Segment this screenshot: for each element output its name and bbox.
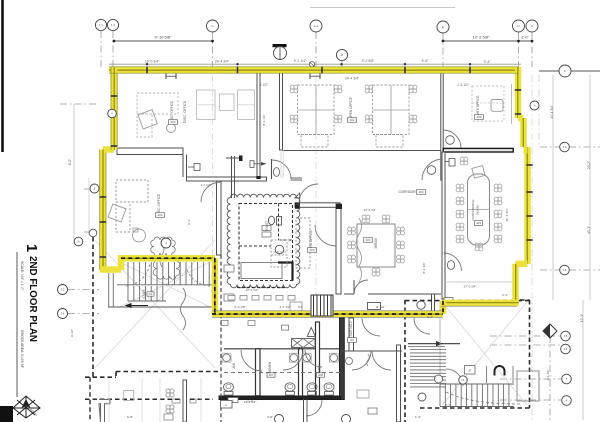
svg-text:24’-4 3/4”: 24’-4 3/4” [215,60,229,64]
svg-text:9’-10”: 9’-10” [70,329,74,337]
svg-text:N3: N3 [298,305,302,309]
svg-text:9’-8”: 9’-8” [127,415,133,419]
svg-text:F: F [564,69,566,73]
svg-text:402: 402 [349,118,354,122]
svg-text:6.9: 6.9 [564,347,568,351]
svg-text:11’-10”: 11’-10” [375,305,384,309]
svg-text:B: B [94,186,96,190]
svg-text:403: 403 [365,238,370,242]
svg-text:20’-4 3/4”: 20’-4 3/4” [505,208,509,221]
svg-text:4’-8”: 4’-8” [267,415,273,419]
svg-text:16’-0 3/4”: 16’-0 3/4” [145,60,159,64]
svg-text:STAIR: STAIR [142,289,146,299]
svg-text:A: A [111,111,113,115]
svg-text:9’-2 1/4”: 9’-2 1/4” [294,59,306,63]
svg-text:A.2: A.2 [314,24,319,28]
svg-text:4’-1”: 4’-1” [502,293,508,297]
svg-text:202: 202 [170,120,175,124]
svg-text:6.5: 6.5 [564,334,568,338]
svg-text:400: 400 [418,190,423,194]
svg-text:A: A [534,103,536,107]
svg-text:1’-6 1/2”: 1’-6 1/2” [457,83,469,87]
svg-text:20’-2”: 20’-2” [587,161,591,169]
svg-text:2’-0”: 2’-0” [521,36,529,40]
svg-text:ST: ST [468,369,472,373]
svg-text:2’-1”: 2’-1” [427,315,433,319]
svg-text:CONFERENCE: CONFERENCE [471,199,475,220]
svg-text:M: M [78,240,80,243]
svg-text:4’-1 3/4”: 4’-1 3/4” [546,369,550,380]
svg-text:2ND FLOOR PLAN: 2ND FLOOR PLAN [27,256,38,342]
svg-text:9’-2 5/8”: 9’-2 5/8” [362,59,374,63]
svg-text:10’-1”: 10’-1” [580,314,584,322]
svg-text:SCALE: 1/4” = 1’-0”: SCALE: 1/4” = 1’-0” [20,261,24,291]
svg-text:5.3: 5.3 [563,145,567,149]
svg-text:5’-8”: 5’-8” [422,59,429,63]
svg-text:HRD OFFICE: HRD OFFICE [309,230,313,249]
svg-text:5.2: 5.2 [61,287,65,291]
svg-text:ROOM: ROOM [476,205,480,215]
svg-text:STAIR NO.2: STAIR NO.2 [349,321,353,339]
svg-text:S1: S1 [149,292,153,296]
svg-text:24’-4 3/4”: 24’-4 3/4” [345,77,359,81]
svg-text:6A: 6A [462,379,465,382]
svg-text:1: 1 [23,244,40,252]
svg-text:408: 408 [318,373,323,377]
svg-text:6’-4 1/8”: 6’-4 1/8” [234,305,245,309]
svg-text:S2: S2 [350,338,354,342]
svg-text:12’-2 5/8”: 12’-2 5/8” [473,35,491,40]
svg-text:27’-0 3/4”: 27’-0 3/4” [464,285,477,289]
svg-text:MEN: MEN [318,364,322,372]
svg-text:8’-0”: 8’-0” [68,159,72,165]
svg-text:40’-5 3/4”: 40’-5 3/4” [246,288,259,292]
svg-text:1.1: 1.1 [99,23,104,27]
svg-text:1.8: 1.8 [563,268,567,272]
svg-text:40’-5 3/4”: 40’-5 3/4” [364,208,377,212]
svg-text:9’-10 5/8”: 9’-10 5/8” [155,35,173,40]
svg-text:406: 406 [476,115,481,119]
svg-text:9’-1”: 9’-1” [187,219,191,225]
svg-text:OPEN OFFICE: OPEN OFFICE [349,97,353,119]
svg-text:GROSS AREA: 5,105 SF: GROSS AREA: 5,105 SF [20,330,24,368]
svg-text:A: A [531,24,533,28]
svg-text:JAN: JAN [232,362,236,369]
svg-text:40’-1”: 40’-1” [587,226,591,234]
svg-text:24’-4 3/4”: 24’-4 3/4” [244,400,257,404]
svg-text:1.3: 1.3 [111,23,116,27]
svg-text:TOILET: TOILET [265,220,269,231]
svg-text:BREAK: BREAK [374,237,378,249]
svg-text:4’-1 1/2”: 4’-1 1/2” [201,183,212,187]
svg-text:3’-4”: 3’-4” [484,60,491,64]
svg-text:2’-7”: 2’-7” [445,403,451,407]
svg-text:EXEC. OFFICE: EXEC. OFFICE [183,101,187,123]
svg-text:5.4: 5.4 [61,311,65,315]
svg-text:8’-1 3/4”: 8’-1 3/4” [422,262,426,273]
svg-text:405: 405 [476,221,481,225]
svg-text:4’-1 1/2”: 4’-1 1/2” [279,305,290,309]
svg-text:404: 404 [309,248,314,252]
svg-text:407: 407 [268,373,273,377]
svg-text:N: N [546,330,548,334]
svg-text:1’-0”: 1’-0” [415,415,421,419]
svg-text:E: E [442,25,444,29]
svg-text:24’-4 3/4”: 24’-4 3/4” [550,105,554,118]
svg-text:8’-1 1/4”: 8’-1 1/4” [262,114,266,125]
svg-text:CORRIDOR: CORRIDOR [398,190,416,194]
svg-text:203: 203 [157,213,162,217]
